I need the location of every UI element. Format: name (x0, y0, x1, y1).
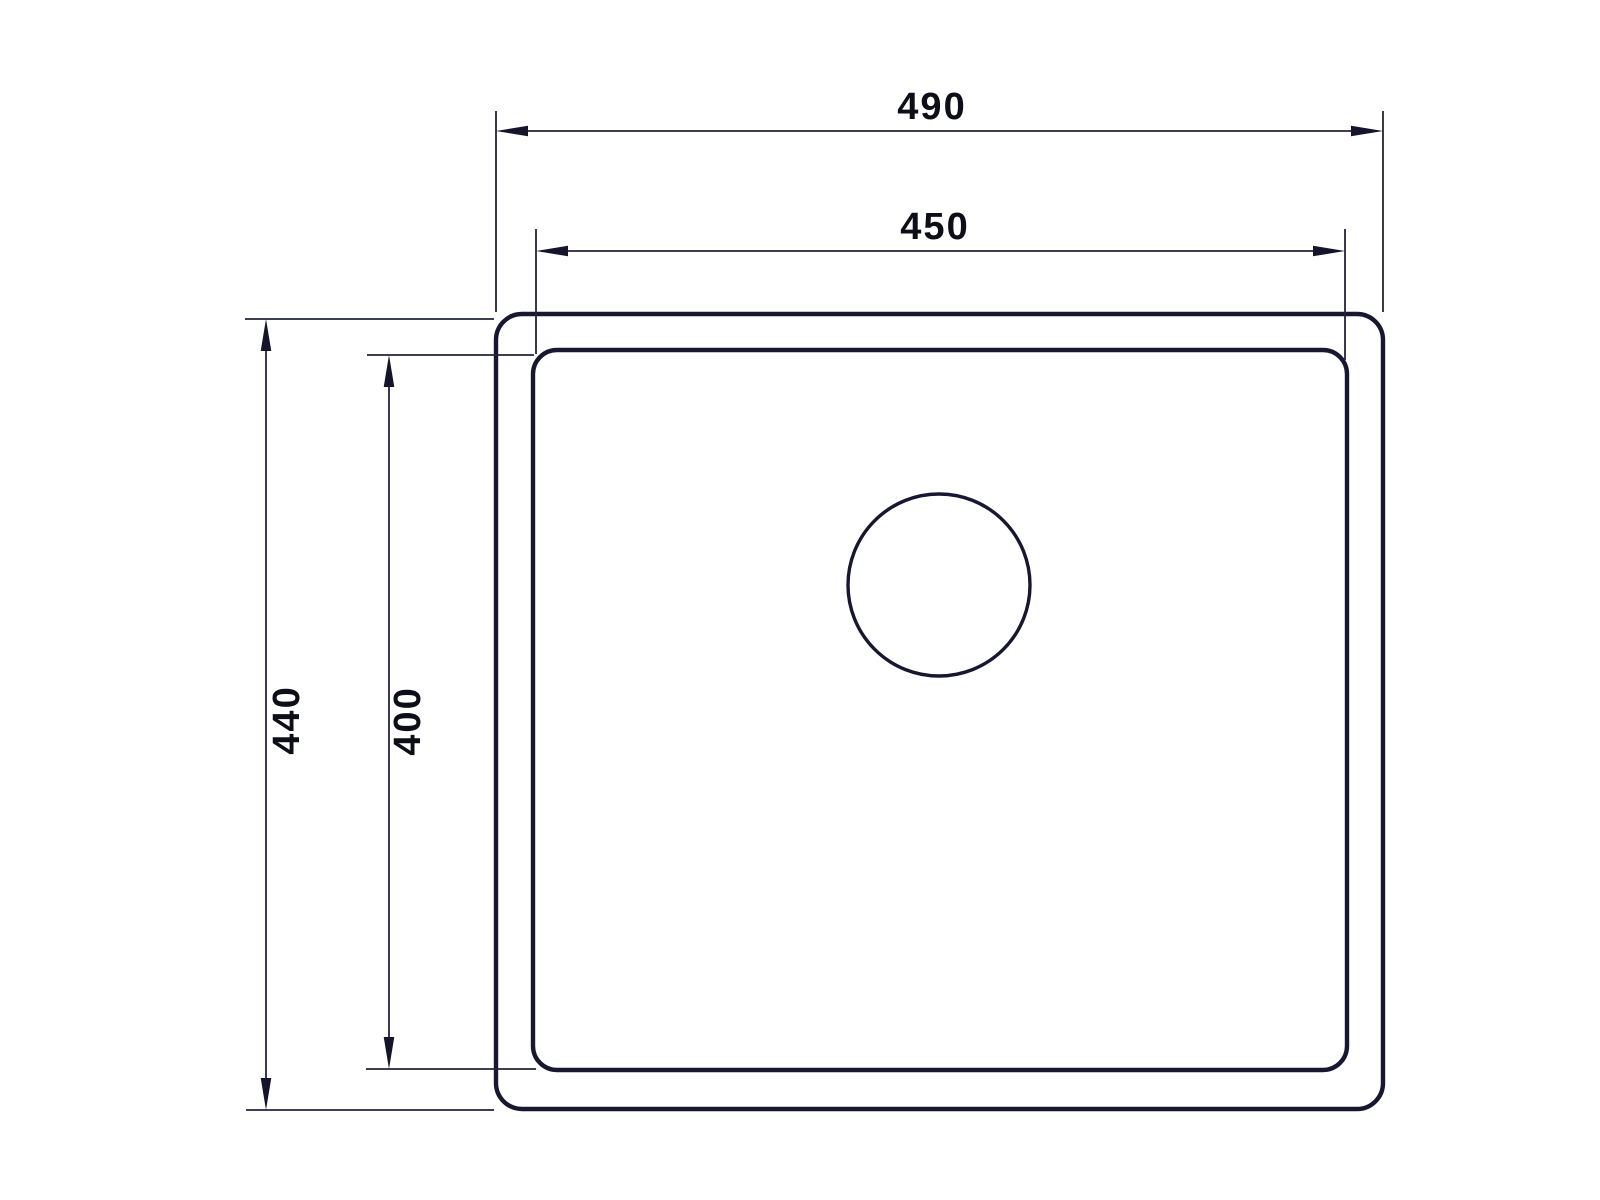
sink-dimension-drawing: 490 450 440 400 (0, 0, 1600, 1200)
arrowhead-right-icon (1313, 246, 1345, 257)
sink-outer-outline (496, 314, 1383, 1109)
arrowhead-right-icon (1351, 126, 1383, 137)
dimension-label-inner-height: 400 (387, 686, 429, 755)
drawing-page: 490 450 440 400 (0, 0, 1600, 1200)
drain-hole-circle (848, 494, 1030, 676)
dimension-label-outer-width: 490 (897, 86, 966, 128)
arrowhead-left-icon (496, 126, 528, 137)
dimension-outer-height: 440 (245, 319, 494, 1110)
dimension-inner-width: 450 (536, 206, 1345, 360)
arrowhead-left-icon (536, 246, 568, 257)
dimension-inner-height: 400 (366, 355, 536, 1069)
sink-outlines (496, 314, 1383, 1109)
arrowhead-top-icon (261, 319, 272, 351)
arrowhead-bottom-icon (384, 1037, 395, 1069)
dimension-label-outer-height: 440 (266, 685, 308, 754)
sink-basin-outline (533, 350, 1347, 1070)
dimension-label-inner-width: 450 (900, 206, 969, 248)
dimension-outer-width: 490 (496, 86, 1383, 312)
arrowhead-bottom-icon (261, 1078, 272, 1110)
arrowhead-top-icon (384, 355, 395, 387)
